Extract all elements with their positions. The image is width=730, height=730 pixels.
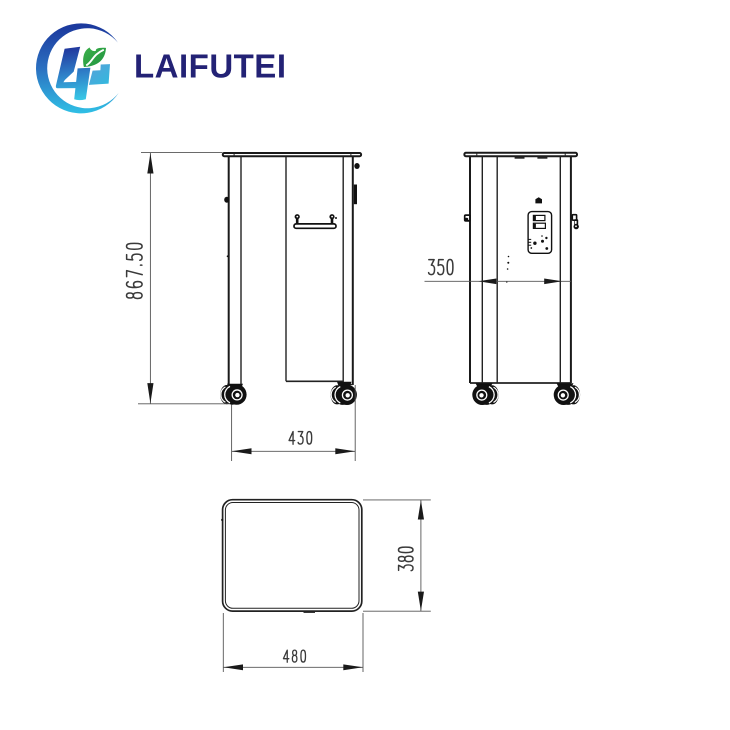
svg-text:LAIFUTEI: LAIFUTEI [134,47,286,84]
